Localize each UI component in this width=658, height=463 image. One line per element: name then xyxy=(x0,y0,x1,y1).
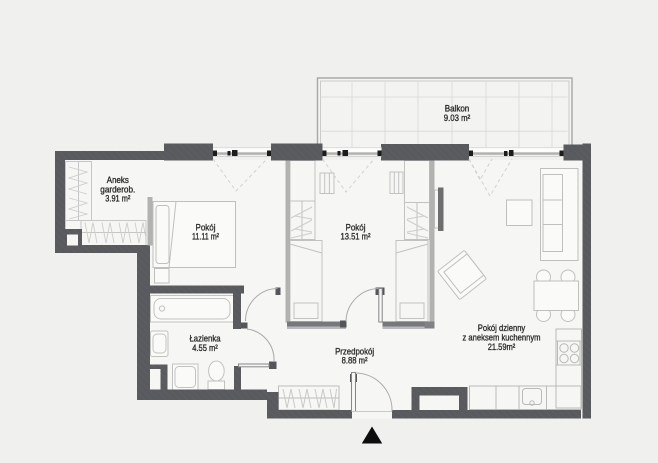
svg-text:Pokój dzienny: Pokój dzienny xyxy=(478,323,526,333)
svg-text:4.55 m²: 4.55 m² xyxy=(192,343,218,353)
svg-text:13.51 m²: 13.51 m² xyxy=(341,232,371,242)
svg-text:9.03 m²: 9.03 m² xyxy=(444,113,471,123)
svg-text:8.88 m²: 8.88 m² xyxy=(342,356,368,366)
svg-text:3.91 m²: 3.91 m² xyxy=(105,194,130,204)
svg-text:21.59m²: 21.59m² xyxy=(488,342,516,352)
svg-text:Balkon: Balkon xyxy=(445,103,470,113)
svg-text:z aneksem kuchennym: z aneksem kuchennym xyxy=(463,333,541,343)
svg-text:11.11 m²: 11.11 m² xyxy=(192,232,219,242)
